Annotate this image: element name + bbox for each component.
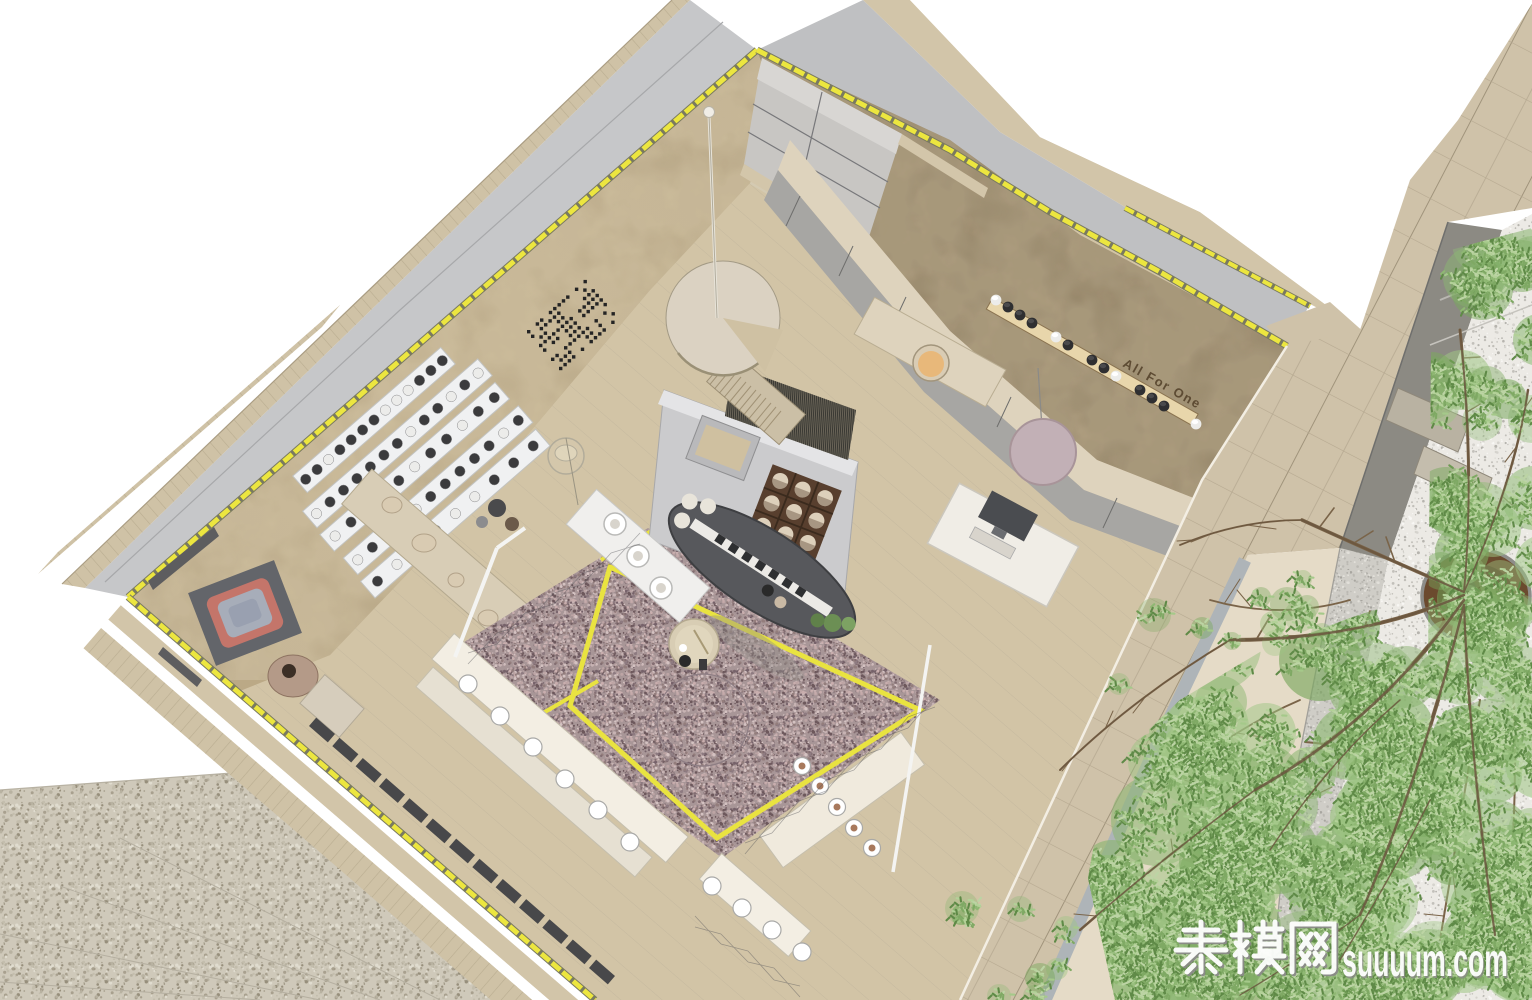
- svg-text:suuuum.com: suuuum.com: [1342, 934, 1508, 985]
